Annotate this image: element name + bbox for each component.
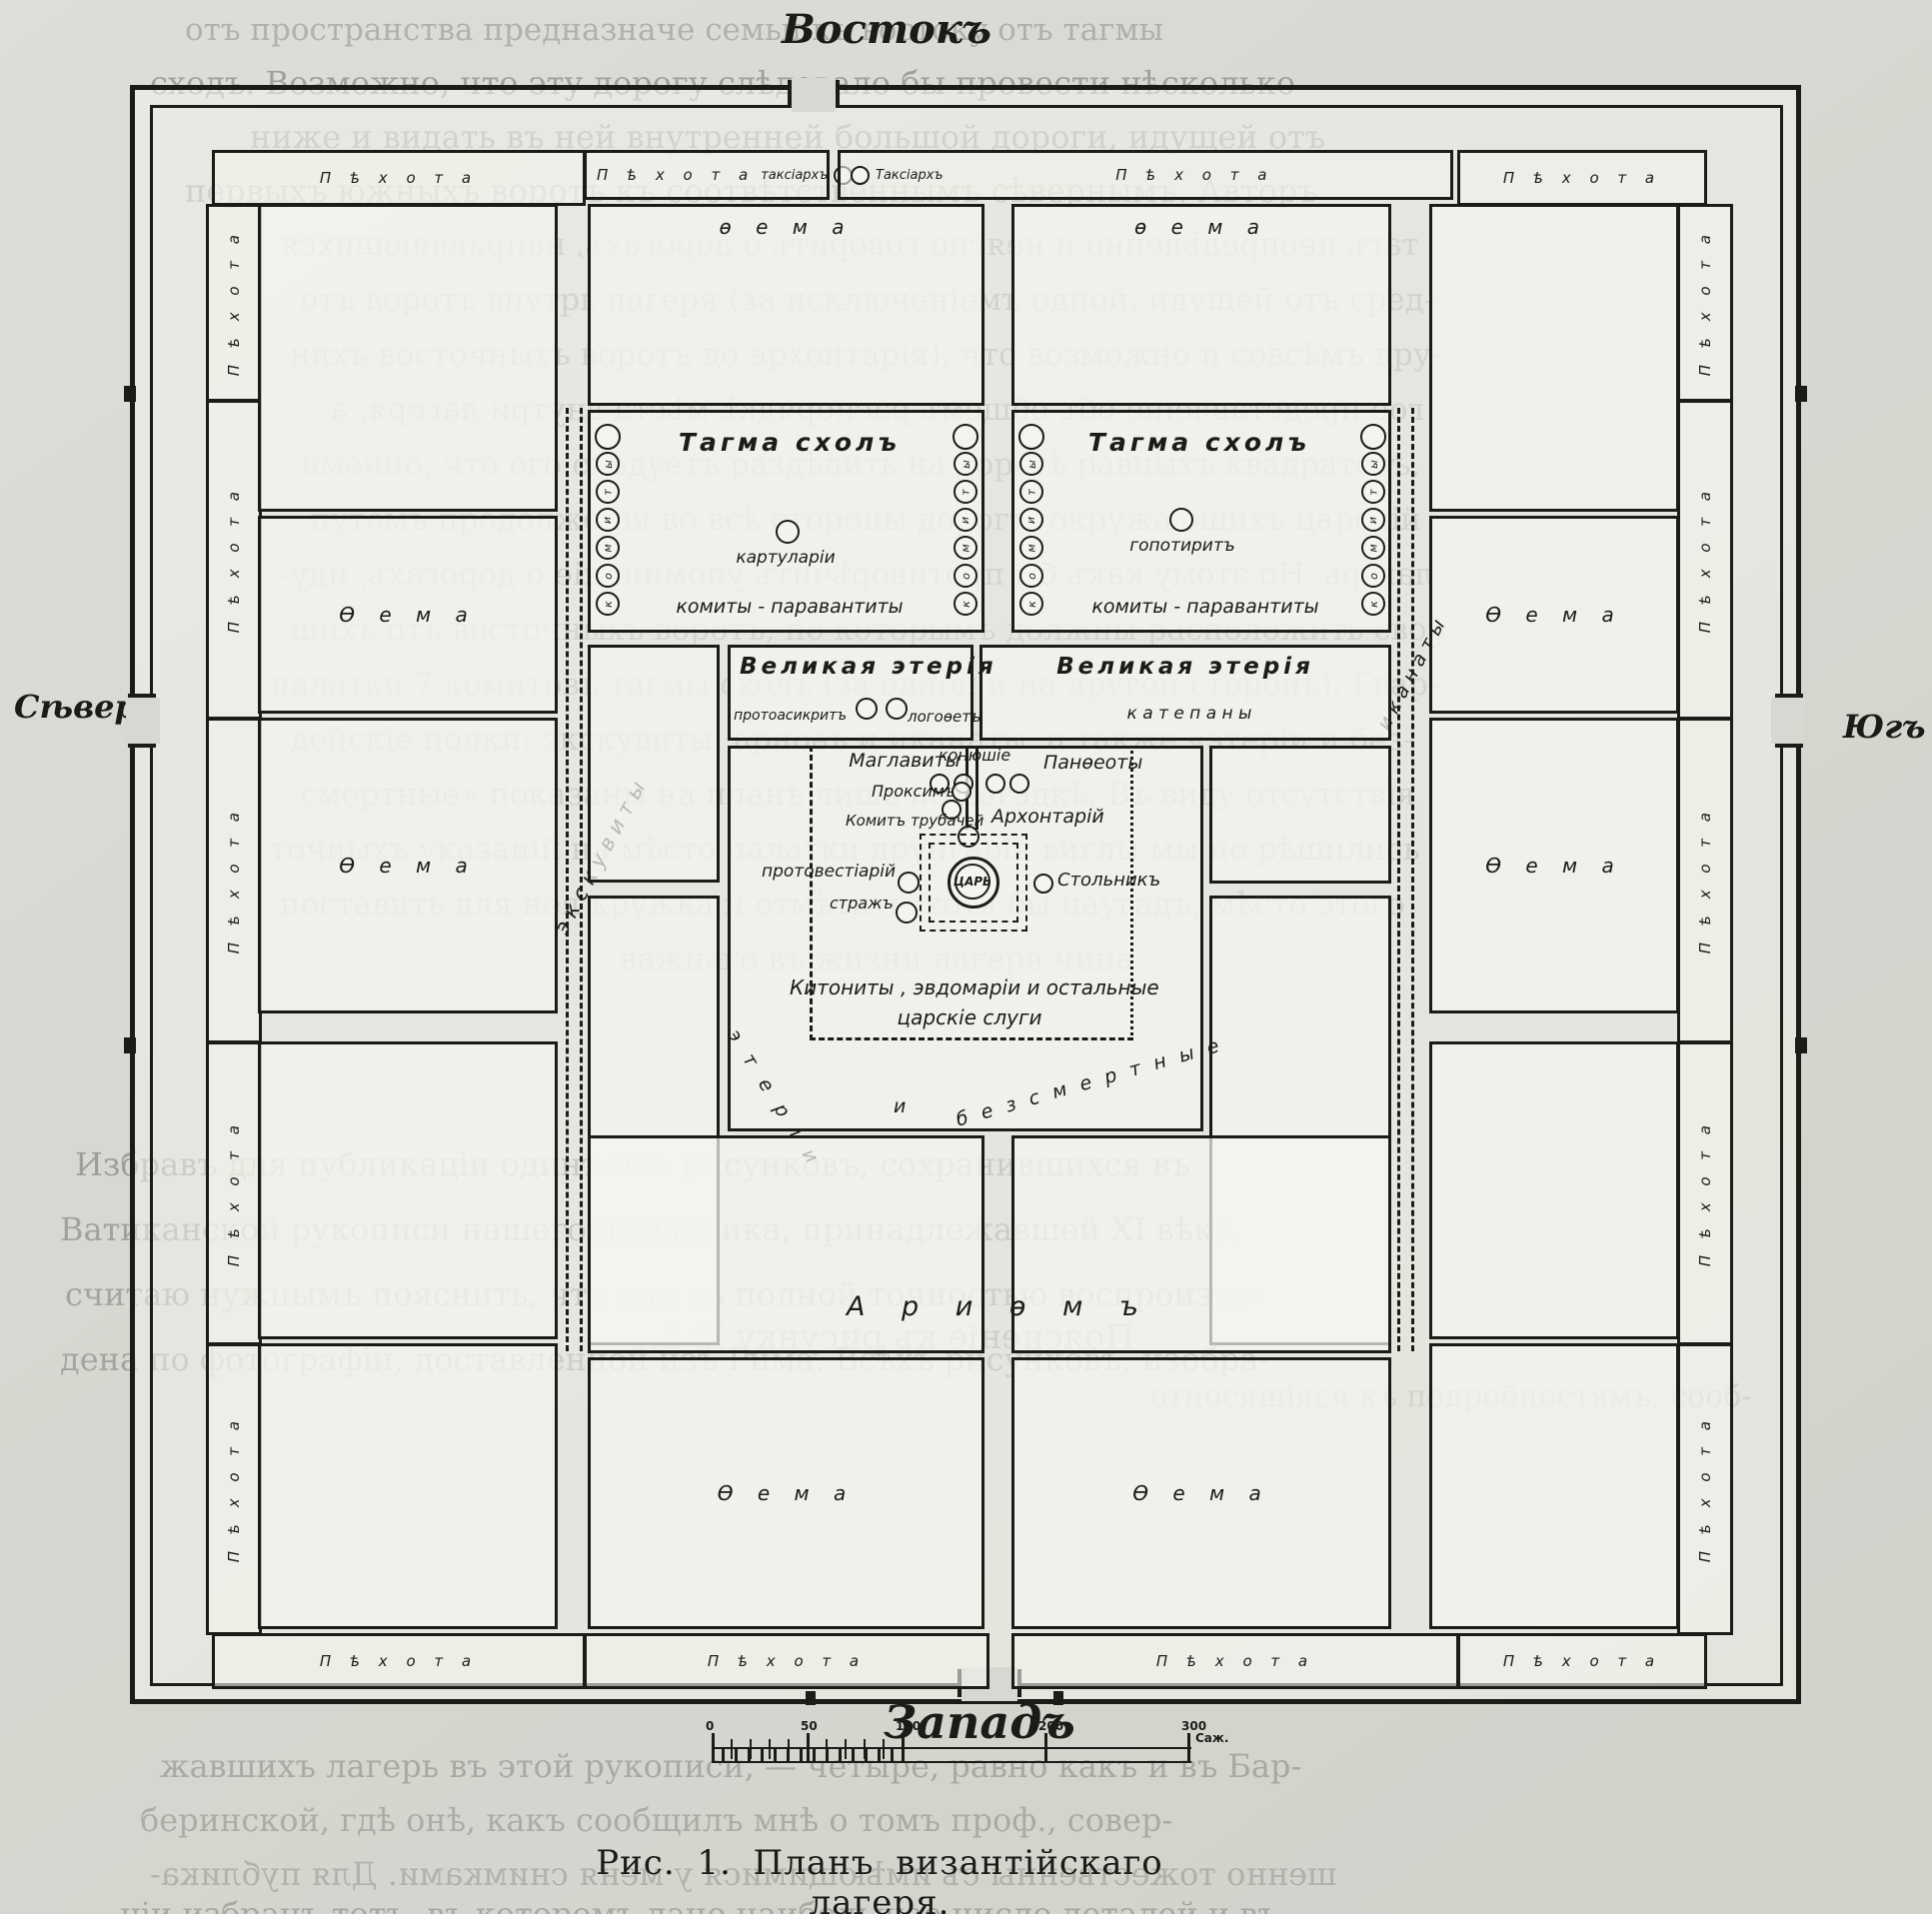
comites-letter-circle: к bbox=[954, 592, 977, 616]
logothete-label: логоѳетъ bbox=[908, 708, 981, 726]
comites-letter-circle: ы bbox=[1019, 452, 1043, 476]
thema-block-north-2: Ѳ е м а bbox=[258, 718, 558, 1013]
infantry-strip-bottom-right: П ѣ х о т а bbox=[1457, 1633, 1707, 1689]
thema-block-west-left: Ѳ е м а bbox=[588, 1357, 984, 1629]
katepans-label: к а т е п а н ы bbox=[1079, 704, 1299, 724]
comites-letter: к bbox=[1025, 601, 1038, 608]
comites-letter: и bbox=[1025, 516, 1038, 523]
scale-tick-label: 100 bbox=[896, 1719, 921, 1733]
comites-letter: т bbox=[959, 489, 971, 495]
empty-block-left-lower bbox=[258, 1041, 558, 1339]
scale-tick-label: 200 bbox=[1038, 1719, 1063, 1733]
compass-south-label: Югъ bbox=[1843, 708, 1925, 746]
east-gate-tick bbox=[788, 80, 792, 108]
tsar-tent-circle: ЦАРЬ bbox=[955, 864, 990, 900]
bastion-notch bbox=[124, 1037, 136, 1053]
protovestiarius-label: протовестіарій bbox=[762, 862, 896, 882]
chartularii-tent-circle bbox=[776, 520, 800, 544]
bastion-notch bbox=[1053, 1691, 1063, 1705]
compass-east-label: Востокъ bbox=[782, 6, 991, 53]
grooms-tent-circle bbox=[1009, 774, 1029, 794]
infantry-label: П ѣ х о т а bbox=[1696, 1119, 1714, 1266]
thema-block-east-left: ѳ е м а bbox=[588, 204, 984, 406]
gopotirit-tent-circle bbox=[1169, 508, 1193, 532]
comites-letter: и bbox=[960, 516, 972, 523]
comites-letter: ы bbox=[960, 460, 972, 469]
infantry-strip-right-3: П ѣ х о т а bbox=[1677, 718, 1733, 1043]
taxiarch-tent-circle bbox=[851, 166, 870, 185]
east-gate-gap bbox=[792, 78, 836, 112]
grooms-tent-circle bbox=[985, 774, 1005, 794]
scale-bar-hatch bbox=[712, 1747, 902, 1761]
empty-block-top-left bbox=[258, 204, 558, 512]
comites-letter: о bbox=[601, 573, 614, 580]
narrow-block-right-upper bbox=[1209, 746, 1391, 884]
comites-letter-circle: м bbox=[954, 536, 977, 560]
comites-letter: к bbox=[960, 601, 972, 608]
infantry-label: П ѣ х о т а bbox=[1696, 807, 1714, 954]
stolnik-label: Стольникъ bbox=[1057, 870, 1160, 891]
bastion-notch bbox=[124, 386, 136, 402]
protoasecretis-tent-circle bbox=[856, 698, 878, 720]
comites-tent-circle bbox=[1018, 424, 1044, 450]
infantry-label: П ѣ х о т а bbox=[225, 229, 243, 376]
south-gate-tick bbox=[1775, 744, 1803, 748]
infantry-label: П ѣ х о т а bbox=[1696, 229, 1714, 376]
stolnik-tent-circle bbox=[1033, 874, 1053, 894]
grooms-label: конюшіе bbox=[930, 746, 1019, 765]
arithmos-label: А р и ѳ м ъ bbox=[810, 1291, 1189, 1322]
empty-block-top-right bbox=[1429, 204, 1679, 512]
gopotirit-label: гопотиритъ bbox=[1107, 536, 1257, 556]
road-dashed-right-1 bbox=[1397, 408, 1400, 1351]
chartularii-label: картуларіи bbox=[706, 548, 866, 568]
kitonites-label-2: царскіе слуги bbox=[850, 1005, 1089, 1029]
bastion-notch bbox=[806, 1691, 816, 1705]
guard-tent-circle bbox=[896, 902, 918, 924]
comites-letter-circle: м bbox=[1019, 536, 1043, 560]
comites-letter-circle: к bbox=[596, 592, 620, 616]
taxiarch-label: таксіархъ bbox=[761, 168, 828, 183]
thema-label: ѳ е м а bbox=[720, 215, 854, 239]
infantry-label: П ѣ х о т а bbox=[320, 169, 478, 187]
comites-letter-circle: т bbox=[1361, 480, 1385, 504]
scale-bar: 050100200300 Саж. bbox=[712, 1725, 1221, 1773]
thema-label: ѳ е м а bbox=[1134, 215, 1268, 239]
infantry-strip-bottom-center-left: П ѣ х о т а bbox=[584, 1633, 989, 1689]
empty-block-bottom-left bbox=[258, 1343, 558, 1629]
comites-letter: т bbox=[1366, 489, 1379, 495]
guard-label: стражъ bbox=[830, 894, 894, 913]
infantry-strip-top-east-right: Таксіархъ П ѣ х о т а bbox=[838, 150, 1453, 200]
thema-block-south-1: Ѳ е м а bbox=[1429, 516, 1679, 714]
comites-letter-circle: ы bbox=[954, 452, 977, 476]
comites-letter-circle: к bbox=[1361, 592, 1385, 616]
comites-letter-circle: о bbox=[1361, 564, 1385, 588]
infantry-label: П ѣ х о т а bbox=[1696, 1415, 1714, 1562]
heteria-arc-label-2: и bbox=[894, 1095, 906, 1117]
thema-label: Ѳ е м а bbox=[718, 1481, 855, 1505]
comites-letter: и bbox=[602, 516, 615, 523]
guard-tent-circle bbox=[898, 872, 920, 894]
bleedthrough-line: отъ пространства предназначе семьи къ во… bbox=[185, 12, 1163, 48]
comites-letter-circle: ы bbox=[1361, 452, 1385, 476]
comites-letter: т bbox=[601, 489, 614, 495]
thema-block-south-2: Ѳ е м а bbox=[1429, 718, 1679, 1013]
comites-letter: м bbox=[1025, 544, 1038, 552]
proxim-tent-circle bbox=[952, 782, 971, 802]
infantry-strip-right-1: П ѣ х о т а bbox=[1677, 204, 1733, 402]
infantry-label: П ѣ х о т а bbox=[1503, 1652, 1661, 1670]
comites-letter-circle: т bbox=[1019, 480, 1043, 504]
comites-letter: о bbox=[959, 573, 971, 580]
comites-letter-circle: к bbox=[1019, 592, 1043, 616]
infantry-strip-left-4: П ѣ х о т а bbox=[206, 1041, 262, 1345]
comites-letter: ы bbox=[602, 460, 615, 469]
infantry-label: П ѣ х о т а bbox=[950, 166, 1440, 184]
thema-label: Ѳ е м а bbox=[1485, 603, 1622, 627]
great-heteria-title: Великая этерія bbox=[1049, 654, 1321, 680]
comites-letter-circle: о bbox=[954, 564, 977, 588]
infantry-strip-bottom-center-right: П ѣ х о т а bbox=[1011, 1633, 1459, 1689]
infantry-strip-right-5: П ѣ х о т а bbox=[1677, 1343, 1733, 1635]
empty-block-bottom-right bbox=[1429, 1343, 1679, 1629]
east-gate-tick bbox=[836, 80, 840, 108]
infantry-label: П ѣ х о т а bbox=[320, 1652, 478, 1670]
great-heteria-title: Великая этерія bbox=[740, 654, 962, 680]
south-gate-tick bbox=[1775, 694, 1803, 698]
bastion-notch bbox=[1795, 1037, 1807, 1053]
comites-letter: и bbox=[1367, 516, 1380, 523]
south-gate-gap bbox=[1771, 698, 1805, 744]
infantry-strip-right-4: П ѣ х о т а bbox=[1677, 1041, 1733, 1345]
infantry-label: П ѣ х о т а bbox=[708, 1652, 866, 1670]
infantry-label: П ѣ х о т а bbox=[225, 1119, 243, 1266]
comites-letter: ы bbox=[1367, 460, 1380, 469]
infantry-strip-top-left: П ѣ х о т а bbox=[212, 150, 586, 206]
scanned-book-page: отъ пространства предназначе семьи къ во… bbox=[0, 0, 1932, 1914]
proxim-label: Проксимъ bbox=[872, 782, 956, 801]
bleedthrough-line: беринской, гдѣ онѣ, какъ сообщилъ мнѣ о … bbox=[140, 1801, 1172, 1839]
comites-paravantitae-label: комиты - паравантиты bbox=[660, 596, 920, 618]
thema-label: Ѳ е м а bbox=[339, 854, 476, 878]
protoasecretis-label: протоасикритъ bbox=[734, 708, 847, 724]
empty-block-right-lower bbox=[1429, 1041, 1679, 1339]
infantry-strip-bottom-left: П ѣ х о т а bbox=[212, 1633, 586, 1689]
infantry-label: П ѣ х о т а bbox=[1156, 1652, 1314, 1670]
comites-letter: м bbox=[960, 544, 972, 552]
narrow-block-left-upper bbox=[588, 645, 720, 883]
comites-letter-circle: о bbox=[596, 564, 620, 588]
thema-block-west-right: Ѳ е м а bbox=[1011, 1357, 1391, 1629]
infantry-label: П ѣ х о т а bbox=[225, 807, 243, 954]
infantry-strip-top-east-left: П ѣ х о т а таксіархъ bbox=[584, 150, 830, 200]
comites-letter-circle: о bbox=[1019, 564, 1043, 588]
north-gate-tick bbox=[128, 744, 156, 748]
infantry-strip-right-2: П ѣ х о т а bbox=[1677, 400, 1733, 720]
figure-caption: Рис. 1. Планъ византійскаго лагеря. bbox=[560, 1843, 1199, 1914]
comites-letter-circle: т bbox=[596, 480, 620, 504]
comites-letter: о bbox=[1024, 573, 1037, 580]
taxiarch-label: Таксіархъ bbox=[876, 168, 944, 183]
bastion-notch bbox=[1795, 386, 1807, 402]
road-dashed-left-1 bbox=[566, 408, 569, 1351]
comites-letter-circle: м bbox=[1361, 536, 1385, 560]
archontarius-label: Архонтарій bbox=[991, 806, 1104, 828]
comites-tent-circle bbox=[1360, 424, 1386, 450]
comites-letter: о bbox=[1366, 573, 1379, 580]
north-gate-tick bbox=[128, 694, 156, 698]
scale-tick-label: 50 bbox=[801, 1719, 818, 1733]
infantry-label: П ѣ х о т а bbox=[597, 166, 755, 184]
comites-letter: к bbox=[602, 601, 615, 608]
thema-block-east-right: ѳ е м а bbox=[1011, 204, 1391, 406]
comites-letter-circle: и bbox=[1019, 508, 1043, 532]
thema-block-north-1: Ѳ е м а bbox=[258, 516, 558, 714]
comites-letter-circle: и bbox=[1361, 508, 1385, 532]
infantry-strip-left-5: П ѣ х о т а bbox=[206, 1343, 262, 1635]
scale-unit-label: Саж. bbox=[1195, 1731, 1228, 1745]
thema-label: Ѳ е м а bbox=[1485, 854, 1622, 878]
pantheoty-label: Панѳеоты bbox=[1043, 752, 1142, 774]
road-dashed-right-2 bbox=[1411, 408, 1414, 1351]
infantry-strip-left-2: П ѣ х о т а bbox=[206, 400, 262, 720]
tagma-schol-title: Тагма схолъ bbox=[1069, 428, 1329, 457]
comites-letter: м bbox=[602, 544, 615, 552]
thema-label: Ѳ е м а bbox=[1132, 1481, 1269, 1505]
infantry-strip-left-1: П ѣ х о т а bbox=[206, 204, 262, 402]
scale-tick-label: 0 bbox=[706, 1719, 714, 1733]
tagma-schol-title: Тагма схолъ bbox=[660, 428, 920, 457]
comites-letter-circle: т bbox=[954, 480, 977, 504]
infantry-label: П ѣ х о т а bbox=[225, 1415, 243, 1562]
infantry-label: П ѣ х о т а bbox=[225, 486, 243, 633]
tsar-label: ЦАРЬ bbox=[954, 875, 991, 889]
infantry-strip-top-right: П ѣ х о т а bbox=[1457, 150, 1707, 206]
comites-letter-circle: м bbox=[596, 536, 620, 560]
comites-paravantitae-label: комиты - паравантиты bbox=[1065, 596, 1345, 618]
north-gate-gap bbox=[126, 698, 160, 744]
kitonites-label-1: Китониты , эвдомаріи и остальные bbox=[790, 975, 1149, 999]
comites-tent-circle bbox=[595, 424, 621, 450]
logothete-tent-circle bbox=[886, 698, 908, 720]
infantry-strip-left-3: П ѣ х о т а bbox=[206, 718, 262, 1043]
comites-letter-circle: и bbox=[954, 508, 977, 532]
comites-letter: ы bbox=[1025, 460, 1038, 469]
comites-letter: м bbox=[1367, 544, 1380, 552]
infantry-label: П ѣ х о т а bbox=[1503, 169, 1661, 187]
comites-letter: т bbox=[1024, 489, 1037, 495]
infantry-label: П ѣ х о т а bbox=[1696, 486, 1714, 633]
comites-tent-circle bbox=[953, 424, 978, 450]
thema-label: Ѳ е м а bbox=[339, 603, 476, 627]
comites-letter-circle: и bbox=[596, 508, 620, 532]
comites-letter-circle: ы bbox=[596, 452, 620, 476]
comites-letter: к bbox=[1367, 601, 1380, 608]
